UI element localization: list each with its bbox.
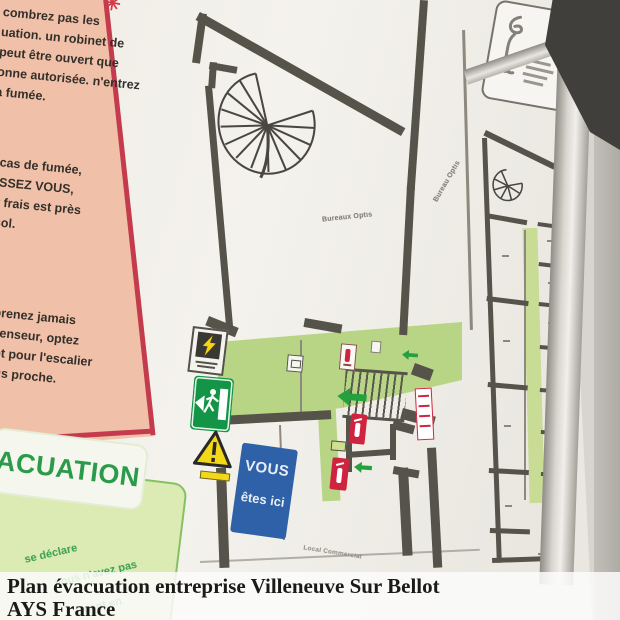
inset-line bbox=[524, 230, 526, 500]
you-are-here-line2: êtes ici bbox=[234, 488, 292, 511]
extinguisher-hose bbox=[354, 418, 362, 422]
fire-extinguisher-icon bbox=[339, 343, 357, 370]
evacuation-plan-photo: ✳ combrez pas les uation. un robinet de … bbox=[0, 0, 620, 620]
small-sign bbox=[370, 341, 381, 354]
spiral-staircase-icon bbox=[489, 162, 529, 205]
door-sign bbox=[286, 354, 303, 372]
fire-extinguisher-icon bbox=[348, 413, 367, 445]
extinguisher-body bbox=[345, 349, 351, 362]
left-arrow-icon bbox=[354, 460, 373, 474]
caption-brand: AYS France bbox=[7, 597, 115, 620]
extinguisher-hose bbox=[336, 462, 344, 466]
sign-glyph bbox=[291, 360, 302, 369]
warning-triangle-icon bbox=[192, 426, 236, 472]
running-man-exit-icon bbox=[190, 374, 235, 433]
fire-extinguisher-icon bbox=[329, 457, 349, 491]
sign-text-bar bbox=[343, 364, 351, 367]
electrical-cutoff-sign bbox=[187, 326, 228, 376]
lightning-icon bbox=[195, 332, 222, 360]
extinguisher-body bbox=[354, 423, 360, 437]
extinguisher-body bbox=[336, 468, 343, 483]
left-arrow-icon bbox=[402, 348, 419, 361]
you-are-here-line1: VOUS bbox=[238, 456, 296, 481]
caption-band: Plan évacuation entreprise Villeneuve Su… bbox=[0, 572, 620, 620]
sign-text-bar bbox=[197, 365, 215, 369]
left-arrow-icon bbox=[336, 387, 367, 407]
room-partition-line bbox=[300, 340, 302, 416]
emergency-light-sign bbox=[331, 440, 347, 451]
fire-alarm-sign bbox=[415, 388, 435, 441]
caption-title: Plan évacuation entreprise Villeneuve Su… bbox=[7, 574, 440, 599]
